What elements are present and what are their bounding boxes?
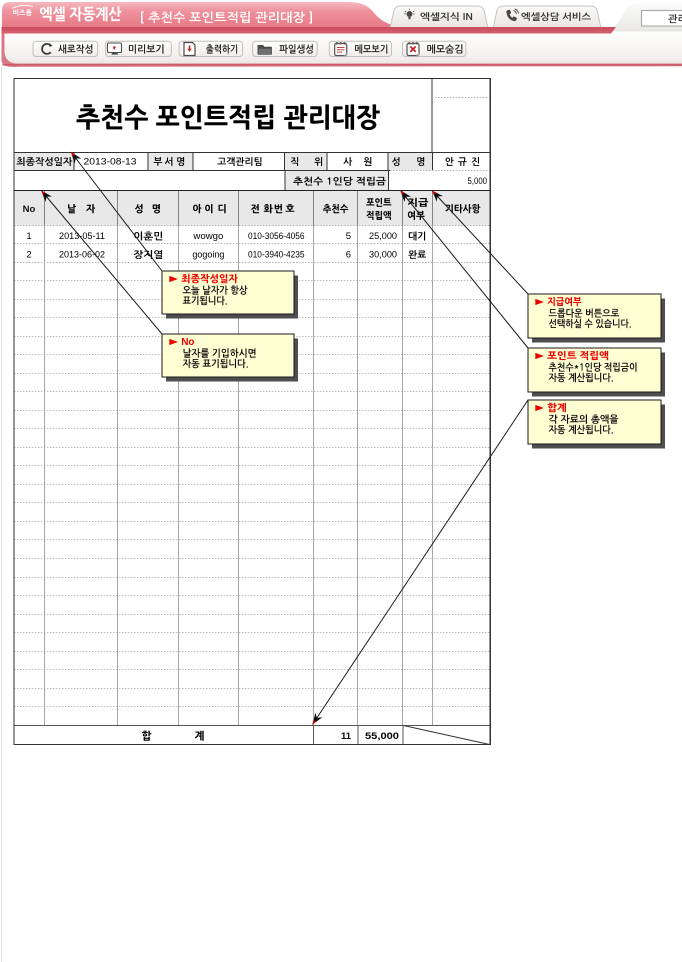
svg-text:010-3940-4235: 010-3940-4235 xyxy=(248,249,305,260)
svg-text:55,000: 55,000 xyxy=(365,731,399,742)
svg-text:5: 5 xyxy=(346,231,351,242)
svg-text:gogoing: gogoing xyxy=(192,249,224,260)
svg-text:25,000: 25,000 xyxy=(369,231,397,242)
svg-text:11: 11 xyxy=(341,731,352,742)
svg-text:6: 6 xyxy=(346,249,351,260)
svg-text:2: 2 xyxy=(26,249,31,260)
svg-text:5,000: 5,000 xyxy=(468,176,488,187)
svg-text:wowgo: wowgo xyxy=(192,231,223,242)
svg-text:2013-08-13: 2013-08-13 xyxy=(84,156,137,167)
svg-text:No: No xyxy=(23,204,36,215)
svg-text:010-3056-4056: 010-3056-4056 xyxy=(248,231,305,242)
svg-text:2013-05-11: 2013-05-11 xyxy=(59,231,105,242)
svg-text:30,000: 30,000 xyxy=(369,249,397,260)
svg-text:1: 1 xyxy=(26,231,31,242)
svg-text:No: No xyxy=(181,337,194,348)
